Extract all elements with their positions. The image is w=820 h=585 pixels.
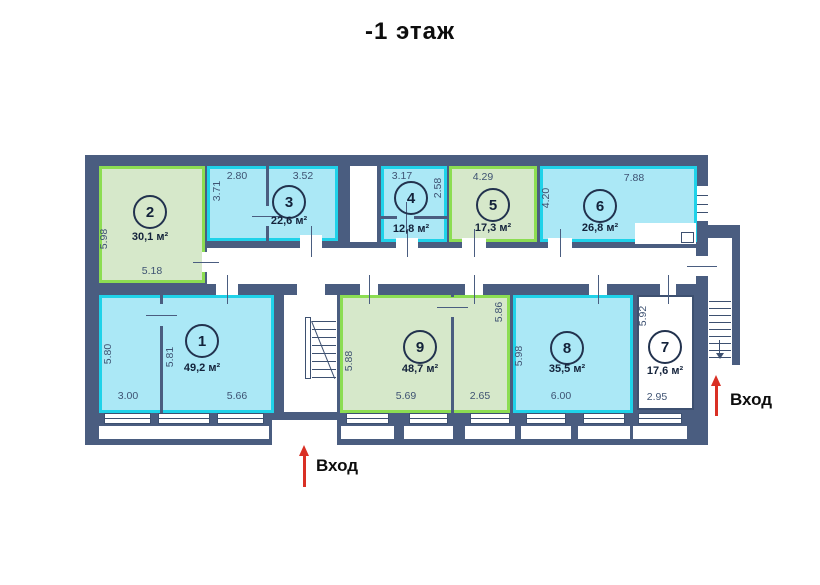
entrance-arrow-shaft <box>303 455 306 487</box>
room-number-badge: 6 <box>583 189 617 223</box>
window-sill-line <box>347 418 388 419</box>
room-area-label: 17,6 м² <box>647 365 683 377</box>
dimension-label: 5.66 <box>227 390 247 402</box>
room-number-badge: 1 <box>185 324 219 358</box>
entrance-opening <box>272 420 337 446</box>
stair-tread <box>312 321 336 322</box>
window-opening <box>578 426 630 439</box>
room-area-label: 12,8 м² <box>393 223 429 235</box>
stair-tread <box>312 377 336 378</box>
room-area-label: 35,5 м² <box>549 363 585 375</box>
entrance-label: Вход <box>730 390 772 410</box>
room9-partition-tick <box>437 307 468 308</box>
room-number-badge: 8 <box>550 331 584 365</box>
window-sill-line <box>584 418 624 419</box>
stair-tread <box>312 345 336 346</box>
window-opening <box>212 426 269 439</box>
room4-partition <box>381 216 397 219</box>
dimension-label: 6.00 <box>551 390 571 402</box>
room-number-badge: 3 <box>272 185 306 219</box>
annex-stair-tread <box>709 343 731 344</box>
room-area-label: 17,3 м² <box>475 222 511 234</box>
shaft <box>350 166 377 242</box>
dimension-label: 2.95 <box>647 391 667 403</box>
dimension-label: 2.58 <box>432 178 444 198</box>
door-corridor-room1-tick <box>227 275 228 304</box>
window-side-line <box>697 212 708 213</box>
room-area-label: 49,2 м² <box>184 362 220 374</box>
room1-partition <box>160 295 163 304</box>
door-room3-corridor-tick <box>311 226 312 257</box>
window-opening <box>404 426 453 439</box>
room-number-badge: 2 <box>133 195 167 229</box>
annex-stair-tread <box>709 350 731 351</box>
duct-box <box>681 232 694 243</box>
annex-stair-tread <box>709 322 731 323</box>
dimension-label: 4.20 <box>540 188 552 208</box>
room-number-badge: 9 <box>403 330 437 364</box>
dimension-label: 5.80 <box>102 344 114 364</box>
window-opening <box>341 426 394 439</box>
stair-tread <box>312 369 336 370</box>
door-corridor-room9a-tick <box>369 275 370 304</box>
window-sill-line <box>410 418 447 419</box>
corridor <box>207 248 696 284</box>
room9-partition <box>451 317 454 413</box>
window-sill-line <box>218 418 263 419</box>
room1-partition <box>160 326 163 413</box>
page-title: -1 этаж <box>0 18 820 46</box>
dimension-label: 5.98 <box>513 346 525 366</box>
window-opening <box>99 426 156 439</box>
floor-plan: -1 этаж 5.985.182.803.713.523.172.584.29… <box>0 0 820 585</box>
room-area-label: 30,1 м² <box>132 231 168 243</box>
stair-tread <box>312 337 336 338</box>
window-sill-line <box>159 418 209 419</box>
dimension-label: 5.18 <box>142 265 162 277</box>
annex-down-arrow-icon <box>716 353 724 359</box>
dimension-label: 3.00 <box>118 390 138 402</box>
dimension-label: 5.86 <box>493 302 505 322</box>
window-side-line <box>697 204 708 205</box>
room3-partition <box>266 166 269 206</box>
window-sill-line <box>527 418 565 419</box>
annex-stair-tread <box>709 336 731 337</box>
entrance-arrow-shaft <box>715 385 718 416</box>
window-side-line <box>697 195 708 196</box>
entrance-label: Вход <box>316 456 358 476</box>
door-corridor-annex-tick <box>687 266 717 267</box>
stair-tread <box>312 361 336 362</box>
dimension-label: 3.71 <box>211 181 223 201</box>
window-sill-line <box>105 418 150 419</box>
room-number-badge: 7 <box>648 330 682 364</box>
annex-stair-tread <box>709 329 731 330</box>
room-number-badge: 4 <box>394 181 428 215</box>
window-sill-line <box>471 418 509 419</box>
annex-stair-tread <box>709 301 731 302</box>
dimension-label: 5.81 <box>164 347 176 367</box>
annex-stair-tread <box>709 308 731 309</box>
room-area-label: 22,6 м² <box>271 215 307 227</box>
dimension-label: 3.52 <box>293 170 313 182</box>
window-opening <box>153 426 215 439</box>
window-sill-line <box>639 418 681 419</box>
room3-partition <box>266 226 269 241</box>
dimension-label: 7.88 <box>624 172 644 184</box>
room1-partition-tick <box>146 315 177 316</box>
door-corridor-room8-tick <box>598 275 599 304</box>
dimension-label: 4.29 <box>473 171 493 183</box>
dimension-label: 2.65 <box>470 390 490 402</box>
door-room2-corridor-tick <box>193 262 219 263</box>
dimension-label: 5.88 <box>343 351 355 371</box>
annex-stair-tread <box>709 315 731 316</box>
window-opening <box>465 426 515 439</box>
door-corridor-room7-tick <box>668 275 669 304</box>
dimension-label: 5.92 <box>637 306 649 326</box>
window-opening <box>633 426 687 439</box>
room4-partition <box>414 216 447 219</box>
room-area-label: 26,8 м² <box>582 222 618 234</box>
door-corridor-room9b-tick <box>474 275 475 304</box>
door-room6-corridor-tick <box>560 229 561 257</box>
annex-arrow-shaft <box>719 340 720 353</box>
window-opening <box>521 426 571 439</box>
room-area-label: 48,7 м² <box>402 363 438 375</box>
dimension-label: 5.69 <box>396 390 416 402</box>
dimension-label: 2.80 <box>227 170 247 182</box>
door-corridor-stairwell <box>297 284 325 295</box>
stair-rail <box>305 317 311 379</box>
dimension-label: 5.98 <box>98 229 110 249</box>
room-number-badge: 5 <box>476 188 510 222</box>
room9-partition <box>451 295 454 297</box>
